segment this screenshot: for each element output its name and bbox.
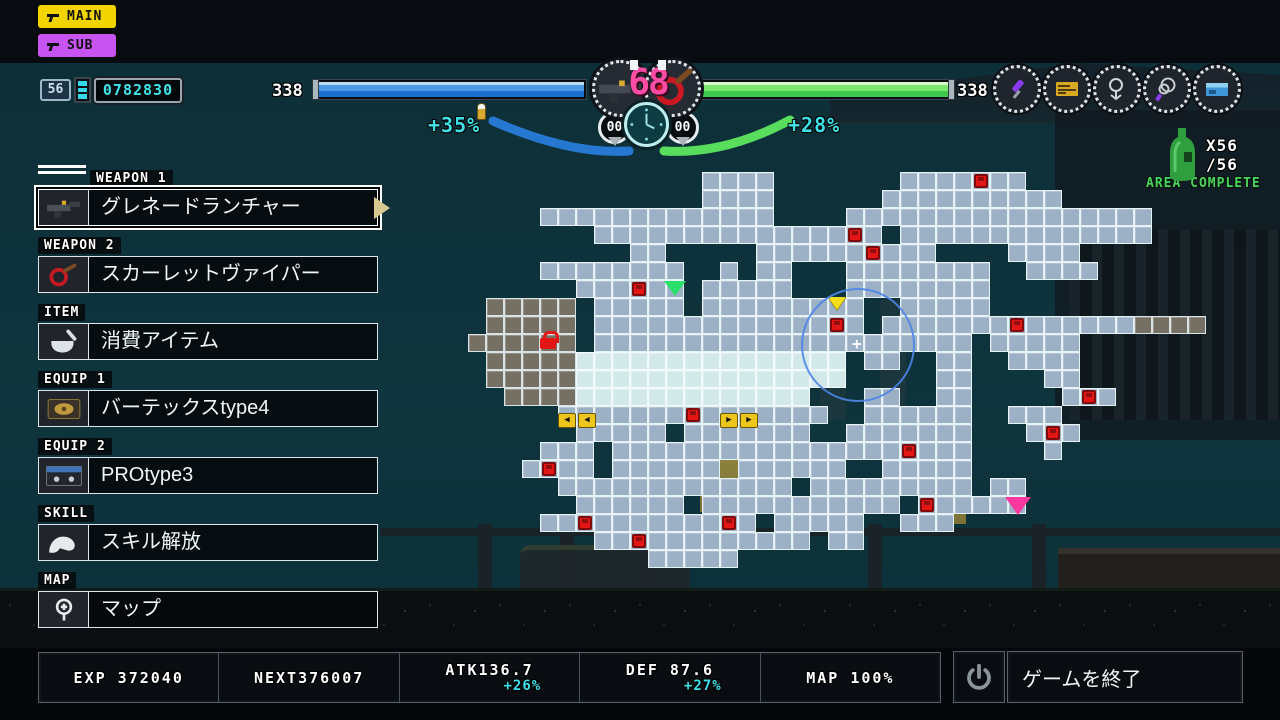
map-room bbox=[774, 514, 792, 532]
map-room bbox=[720, 352, 738, 370]
menu-slot-weapon2[interactable]: スカーレットヴァイパー bbox=[38, 256, 378, 293]
map-room bbox=[504, 388, 522, 406]
map-room bbox=[936, 406, 954, 424]
map-room bbox=[774, 370, 792, 388]
map-room bbox=[702, 370, 720, 388]
map-room bbox=[828, 226, 846, 244]
map-room bbox=[936, 298, 954, 316]
map-room bbox=[810, 244, 828, 262]
map-room bbox=[684, 352, 702, 370]
hp-right-value: 338 bbox=[957, 81, 988, 101]
map-room bbox=[900, 244, 918, 262]
map-room bbox=[612, 262, 630, 280]
map-room bbox=[774, 478, 792, 496]
selection-arrow-icon bbox=[374, 197, 401, 219]
menu-item-label: EQUIP 2 bbox=[38, 438, 112, 455]
map-room bbox=[936, 352, 954, 370]
map-room bbox=[540, 208, 558, 226]
map-room bbox=[684, 208, 702, 226]
map-room bbox=[774, 316, 792, 334]
menu-slot-value: スカーレットヴァイパー bbox=[89, 257, 377, 292]
map-room bbox=[1044, 316, 1062, 334]
map-room bbox=[774, 442, 792, 460]
selected-category-indicator bbox=[38, 165, 86, 174]
map-room bbox=[1098, 226, 1116, 244]
map-room bbox=[648, 334, 666, 352]
map-room bbox=[684, 514, 702, 532]
map-room bbox=[1116, 316, 1134, 334]
map-room bbox=[558, 298, 576, 316]
map-room bbox=[666, 550, 684, 568]
stat-cell-1: EXP 372040 bbox=[39, 653, 219, 702]
quit-game-button[interactable]: ゲームを終了 bbox=[1007, 651, 1243, 703]
map-room bbox=[558, 334, 576, 352]
map-room bbox=[756, 262, 774, 280]
map-room bbox=[594, 388, 612, 406]
map-room bbox=[738, 190, 756, 208]
map-room bbox=[648, 298, 666, 316]
save-point-icon bbox=[686, 408, 700, 422]
map-room bbox=[1080, 262, 1098, 280]
map-room bbox=[756, 280, 774, 298]
hp-bar-right-fill bbox=[701, 82, 951, 97]
map-room bbox=[504, 370, 522, 388]
map-room bbox=[882, 496, 900, 514]
map-room bbox=[774, 262, 792, 280]
map-room bbox=[810, 514, 828, 532]
map-room bbox=[666, 388, 684, 406]
map-room bbox=[576, 352, 594, 370]
map-room bbox=[612, 352, 630, 370]
map-room bbox=[900, 190, 918, 208]
map-room bbox=[594, 316, 612, 334]
map-room bbox=[594, 208, 612, 226]
map-room bbox=[936, 262, 954, 280]
map-room bbox=[594, 298, 612, 316]
map-room bbox=[882, 190, 900, 208]
map-room bbox=[684, 550, 702, 568]
blue-card-icon[interactable] bbox=[1193, 65, 1241, 113]
map-room bbox=[612, 226, 630, 244]
map-room bbox=[1062, 424, 1080, 442]
map-room bbox=[936, 208, 954, 226]
kunai-icon bbox=[1003, 75, 1031, 103]
map-room bbox=[972, 208, 990, 226]
map-room bbox=[1044, 406, 1062, 424]
map-room bbox=[612, 334, 630, 352]
save-point-icon bbox=[920, 498, 934, 512]
stat-cell-5: MAP 100% bbox=[761, 653, 940, 702]
map-room bbox=[720, 316, 738, 334]
bullet-icon bbox=[477, 103, 486, 120]
map-room bbox=[972, 316, 990, 334]
menu-slot-value: マップ bbox=[89, 592, 377, 627]
map-room bbox=[756, 532, 774, 550]
map-room bbox=[720, 442, 738, 460]
map-room bbox=[1044, 226, 1062, 244]
map-room bbox=[918, 460, 936, 478]
map-room bbox=[666, 478, 684, 496]
map-room bbox=[936, 478, 954, 496]
pink-marker-icon bbox=[1005, 497, 1031, 515]
map-room bbox=[594, 406, 612, 424]
map-room bbox=[630, 478, 648, 496]
map-room bbox=[1026, 406, 1044, 424]
map-room bbox=[612, 280, 630, 298]
arm-icon bbox=[39, 525, 89, 560]
map-room bbox=[918, 478, 936, 496]
map-room bbox=[792, 442, 810, 460]
map-room bbox=[990, 190, 1008, 208]
map-room bbox=[648, 532, 666, 550]
map-room bbox=[900, 424, 918, 442]
map-room bbox=[1008, 190, 1026, 208]
stat-value: ATK136.7 bbox=[445, 661, 533, 679]
menu-slot-map[interactable]: マップ bbox=[38, 591, 378, 628]
menu-slot-value: バーテックスtype4 bbox=[89, 391, 377, 426]
map-room bbox=[882, 406, 900, 424]
map-room bbox=[540, 514, 558, 532]
map-room bbox=[954, 424, 972, 442]
map-room bbox=[918, 442, 936, 460]
pass-ticket-icon bbox=[1053, 75, 1081, 103]
grapple-hook-icon bbox=[1103, 75, 1131, 103]
map-room bbox=[684, 334, 702, 352]
kunai-icon[interactable] bbox=[993, 65, 1041, 113]
map-room bbox=[648, 226, 666, 244]
save-point-icon bbox=[578, 516, 592, 530]
map-room bbox=[936, 172, 954, 190]
save-point-icon bbox=[866, 246, 880, 260]
map-room bbox=[702, 172, 720, 190]
map-room bbox=[648, 370, 666, 388]
map-room bbox=[972, 262, 990, 280]
map-room bbox=[756, 244, 774, 262]
map-room bbox=[684, 226, 702, 244]
map-room bbox=[1044, 334, 1062, 352]
map-room bbox=[990, 208, 1008, 226]
map-room bbox=[1062, 262, 1080, 280]
whip-rope-icon bbox=[1153, 75, 1181, 103]
map-pin-icon bbox=[39, 592, 89, 627]
whip-rope-icon[interactable] bbox=[1143, 65, 1191, 113]
timer-gauge bbox=[624, 102, 669, 147]
map-room bbox=[918, 424, 936, 442]
map-room bbox=[954, 352, 972, 370]
gun-icon bbox=[46, 11, 62, 23]
map-room bbox=[1134, 208, 1152, 226]
stat-value: NEXT376007 bbox=[254, 669, 364, 687]
stat-value: DEF 87.6 bbox=[626, 661, 714, 679]
map-room bbox=[792, 244, 810, 262]
map-room bbox=[612, 496, 630, 514]
map-room bbox=[594, 532, 612, 550]
map-room bbox=[720, 190, 738, 208]
background-sky bbox=[0, 0, 1280, 63]
map-room bbox=[1044, 370, 1062, 388]
map-room bbox=[702, 334, 720, 352]
map-room bbox=[720, 262, 738, 280]
game-screen: MAIN SUB 56 0782830 338 338 68 bbox=[0, 0, 1280, 720]
map-room bbox=[1026, 262, 1044, 280]
map-room bbox=[612, 424, 630, 442]
map-room bbox=[1026, 190, 1044, 208]
menu: WEAPON 1グレネードランチャーWEAPON 2スカーレットヴァイパーITE… bbox=[38, 167, 378, 636]
map-room bbox=[720, 388, 738, 406]
left-buff-percent: +35% bbox=[428, 113, 480, 137]
map-room bbox=[828, 244, 846, 262]
map-room bbox=[486, 316, 504, 334]
map-room bbox=[486, 298, 504, 316]
map-room bbox=[774, 424, 792, 442]
map-room bbox=[810, 226, 828, 244]
map-room bbox=[702, 460, 720, 478]
gun-icon bbox=[46, 40, 62, 52]
map-room bbox=[594, 280, 612, 298]
stat-cell-2: NEXT376007 bbox=[219, 653, 399, 702]
map-room bbox=[630, 514, 648, 532]
menu-item-label: ITEM bbox=[38, 304, 85, 321]
map-room bbox=[648, 406, 666, 424]
map-room bbox=[522, 334, 540, 352]
map-room bbox=[666, 226, 684, 244]
map-room bbox=[792, 496, 810, 514]
map-room bbox=[774, 406, 792, 424]
map-room bbox=[882, 244, 900, 262]
hp-bar-right bbox=[699, 80, 953, 99]
map-room bbox=[1116, 226, 1134, 244]
map-room bbox=[774, 388, 792, 406]
map-room bbox=[756, 172, 774, 190]
map-room bbox=[1008, 244, 1026, 262]
map-room bbox=[900, 226, 918, 244]
map-room bbox=[846, 496, 864, 514]
transit-arrows-icon[interactable]: ▶▶ bbox=[720, 413, 758, 428]
map-room bbox=[954, 460, 972, 478]
map-room bbox=[774, 226, 792, 244]
map-room bbox=[630, 460, 648, 478]
map-room bbox=[1008, 478, 1026, 496]
map-room bbox=[702, 532, 720, 550]
scarlet-whip-icon bbox=[39, 257, 89, 292]
transit-arrows-icon[interactable]: ◀◀ bbox=[558, 413, 596, 428]
map-room bbox=[972, 496, 990, 514]
map-room bbox=[954, 316, 972, 334]
map-room bbox=[1062, 388, 1080, 406]
map-room bbox=[810, 442, 828, 460]
map-room bbox=[756, 208, 774, 226]
power-button[interactable] bbox=[953, 651, 1005, 703]
map-room bbox=[666, 442, 684, 460]
map-room bbox=[792, 388, 810, 406]
map-room bbox=[594, 262, 612, 280]
menu-slot-skill[interactable]: スキル解放 bbox=[38, 524, 378, 561]
module-icon bbox=[39, 391, 89, 426]
map-room bbox=[738, 316, 756, 334]
map-room bbox=[792, 226, 810, 244]
map-room bbox=[648, 244, 666, 262]
pass-ticket-icon[interactable] bbox=[1043, 65, 1091, 113]
map-room bbox=[900, 262, 918, 280]
map-room bbox=[630, 244, 648, 262]
map-room bbox=[756, 388, 774, 406]
map-room bbox=[666, 208, 684, 226]
map-room bbox=[720, 226, 738, 244]
map-room bbox=[774, 298, 792, 316]
map-room bbox=[720, 172, 738, 190]
menu-slot-equip2[interactable]: PROtype3 bbox=[38, 457, 378, 494]
map-room bbox=[756, 424, 774, 442]
map-room bbox=[648, 550, 666, 568]
map-room bbox=[972, 298, 990, 316]
main-weapon-button[interactable]: MAIN bbox=[38, 5, 116, 28]
map-room bbox=[648, 424, 666, 442]
map-room bbox=[756, 190, 774, 208]
map-room bbox=[540, 262, 558, 280]
map-room bbox=[864, 208, 882, 226]
map-room bbox=[720, 478, 738, 496]
map-room bbox=[558, 262, 576, 280]
map-room bbox=[594, 478, 612, 496]
map-room bbox=[684, 388, 702, 406]
map-room bbox=[1134, 226, 1152, 244]
map-room bbox=[576, 370, 594, 388]
stat-bonus: +26% bbox=[504, 678, 542, 694]
map-room bbox=[1098, 316, 1116, 334]
sub-weapon-button[interactable]: SUB bbox=[38, 34, 116, 57]
map-room bbox=[1026, 352, 1044, 370]
map-room bbox=[630, 208, 648, 226]
map-room bbox=[936, 190, 954, 208]
save-point-icon bbox=[632, 282, 646, 296]
map-room bbox=[846, 532, 864, 550]
menu-item-label: MAP bbox=[38, 572, 76, 589]
map-room bbox=[954, 334, 972, 352]
map-room bbox=[918, 244, 936, 262]
map-room bbox=[504, 298, 522, 316]
map-room bbox=[558, 388, 576, 406]
map-room bbox=[756, 478, 774, 496]
bottle-count: X56 bbox=[1206, 136, 1238, 155]
map-room bbox=[702, 442, 720, 460]
map-room bbox=[576, 280, 594, 298]
map-room bbox=[900, 406, 918, 424]
save-point-icon bbox=[974, 174, 988, 188]
map-room bbox=[846, 208, 864, 226]
map-room bbox=[774, 460, 792, 478]
map-room bbox=[954, 226, 972, 244]
map-room bbox=[1062, 316, 1080, 334]
map-room bbox=[828, 460, 846, 478]
map-room bbox=[864, 496, 882, 514]
map-room bbox=[702, 388, 720, 406]
map-room bbox=[594, 424, 612, 442]
map-room bbox=[738, 532, 756, 550]
map-room bbox=[540, 352, 558, 370]
map-room bbox=[882, 442, 900, 460]
map-room bbox=[558, 316, 576, 334]
map-room bbox=[792, 532, 810, 550]
map-room bbox=[684, 442, 702, 460]
hp-bar-left-fill bbox=[316, 82, 584, 97]
menu-slot-equip1[interactable]: バーテックスtype4 bbox=[38, 390, 378, 427]
map-room bbox=[882, 262, 900, 280]
map-room bbox=[720, 208, 738, 226]
map-room bbox=[522, 388, 540, 406]
map-room bbox=[702, 280, 720, 298]
map-room bbox=[522, 298, 540, 316]
map-room bbox=[774, 334, 792, 352]
credits-counter: 0782830 bbox=[94, 78, 182, 103]
map-room bbox=[1062, 352, 1080, 370]
map-room bbox=[720, 298, 738, 316]
map-room bbox=[738, 460, 756, 478]
map-room bbox=[918, 280, 936, 298]
menu-item-label: WEAPON 1 bbox=[90, 170, 173, 187]
map-room bbox=[1044, 352, 1062, 370]
map-room bbox=[774, 280, 792, 298]
map-room bbox=[630, 442, 648, 460]
map-room bbox=[954, 298, 972, 316]
save-point-icon bbox=[848, 228, 862, 242]
save-point-icon bbox=[632, 534, 646, 548]
map-room bbox=[918, 226, 936, 244]
map-room bbox=[576, 208, 594, 226]
map-room bbox=[828, 478, 846, 496]
map-room bbox=[846, 442, 864, 460]
map-room bbox=[702, 226, 720, 244]
map-room bbox=[972, 226, 990, 244]
stats-bar: EXP 372040NEXT376007ATK136.7+26%DEF 87.6… bbox=[38, 652, 941, 703]
map-room bbox=[702, 352, 720, 370]
map-room bbox=[936, 280, 954, 298]
map-room bbox=[990, 226, 1008, 244]
menu-slot-item[interactable]: 消費アイテム bbox=[38, 323, 378, 360]
map-room bbox=[612, 208, 630, 226]
map-room bbox=[612, 514, 630, 532]
menu-slot-weapon1[interactable]: グレネードランチャー bbox=[38, 189, 378, 226]
map-room bbox=[1008, 406, 1026, 424]
map-room bbox=[1080, 208, 1098, 226]
map-room bbox=[1170, 316, 1188, 334]
map-room bbox=[936, 370, 954, 388]
map-room bbox=[918, 316, 936, 334]
map-room bbox=[486, 334, 504, 352]
map-room bbox=[774, 496, 792, 514]
map-room bbox=[918, 334, 936, 352]
map-room bbox=[972, 280, 990, 298]
map-room bbox=[576, 478, 594, 496]
map-room bbox=[918, 406, 936, 424]
grapple-hook-icon[interactable] bbox=[1093, 65, 1141, 113]
map-room bbox=[630, 388, 648, 406]
map-room bbox=[612, 460, 630, 478]
map-room bbox=[936, 514, 954, 532]
map-room bbox=[594, 352, 612, 370]
map-room bbox=[954, 442, 972, 460]
map-room bbox=[936, 316, 954, 334]
map-room bbox=[810, 406, 828, 424]
map-room bbox=[990, 316, 1008, 334]
map-room bbox=[954, 280, 972, 298]
menu-item-5: EQUIP 2PROtype3 bbox=[38, 435, 378, 494]
menu-item-1: WEAPON 1グレネードランチャー bbox=[38, 167, 378, 226]
map-room bbox=[1044, 442, 1062, 460]
map-room bbox=[990, 334, 1008, 352]
map-room bbox=[720, 532, 738, 550]
map-room bbox=[1080, 316, 1098, 334]
map-room bbox=[1188, 316, 1206, 334]
